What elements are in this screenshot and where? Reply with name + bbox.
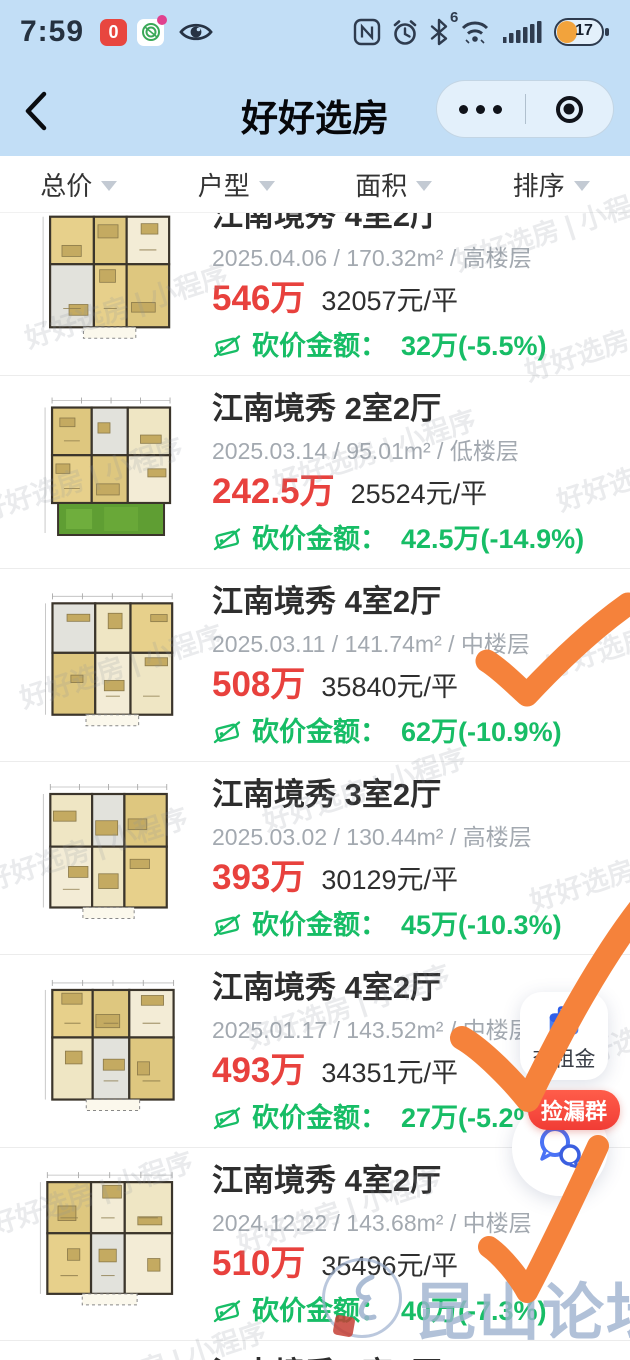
price-row: 510万35496元/平 bbox=[212, 1246, 606, 1284]
price-cut-tag-icon bbox=[212, 1296, 242, 1326]
price-row: 393万30129元/平 bbox=[212, 860, 606, 898]
eye-icon bbox=[178, 19, 214, 45]
nfc-icon bbox=[353, 18, 381, 46]
price-cut-tag-icon bbox=[212, 331, 242, 361]
target-circle-icon bbox=[556, 96, 583, 123]
listing-price: 546万 bbox=[212, 281, 305, 317]
bargain-group-badge[interactable]: 捡漏群 bbox=[528, 1090, 620, 1130]
price-cut-row: 砍价金额：40万(-7.3%) bbox=[212, 1296, 606, 1326]
listing-card[interactable]: 江南境秀 4室2厅2025.03.11 / 141.74m² / 中楼层508万… bbox=[0, 569, 630, 762]
battery-percent: 17 bbox=[568, 22, 600, 40]
price-cut-row: 砍价金额：45万(-10.3%) bbox=[212, 910, 606, 940]
price-cut-label: 砍价金额： bbox=[252, 331, 387, 361]
listing-unit-price: 35496元/平 bbox=[321, 1248, 458, 1284]
listing-meta: 2024.12.22 / 143.68m² / 中楼层 bbox=[212, 1210, 606, 1236]
price-cut-tag-icon bbox=[212, 910, 242, 940]
more-button[interactable] bbox=[437, 81, 525, 137]
nav-bar: 好好选房 bbox=[0, 64, 630, 156]
listing-unit-price: 35840元/平 bbox=[321, 669, 458, 705]
floorplan-image bbox=[34, 197, 184, 349]
floorplan-image bbox=[34, 969, 184, 1121]
network-generation-label: 6 bbox=[450, 9, 458, 26]
floorplan-image bbox=[34, 1162, 184, 1314]
filter-sort[interactable]: 排序 bbox=[473, 166, 630, 203]
listing-meta: 2025.03.02 / 130.44m² / 高楼层 bbox=[212, 824, 606, 850]
listing-info: 江南境秀 2室2厅2025.03.14 / 95.01m² / 低楼层242.5… bbox=[212, 390, 606, 554]
price-row: 508万35840元/平 bbox=[212, 667, 606, 705]
filter-layout[interactable]: 户型 bbox=[158, 166, 316, 203]
filter-bar: 总价 户型 面积 排序 bbox=[0, 156, 630, 213]
notification-badge-icon: 0 bbox=[100, 19, 127, 46]
floorplan-image bbox=[34, 776, 184, 928]
filter-total-price[interactable]: 总价 bbox=[0, 166, 158, 203]
notification-dot bbox=[157, 15, 167, 25]
listing-unit-price: 25524元/平 bbox=[351, 476, 488, 512]
notification-badge-count: 0 bbox=[109, 22, 119, 43]
green-swirl-icon bbox=[140, 21, 162, 43]
phone-screen: 7:59 0 bbox=[0, 0, 630, 1360]
price-row: 546万32057元/平 bbox=[212, 281, 606, 319]
listing-unit-price: 32057元/平 bbox=[321, 283, 458, 319]
floorplan-image bbox=[34, 1355, 184, 1360]
price-cut-label: 砍价金额： bbox=[252, 1296, 387, 1326]
floorplan-image bbox=[34, 390, 184, 542]
check-rent-button[interactable]: 查租金 bbox=[520, 992, 608, 1080]
listing-price: 508万 bbox=[212, 667, 305, 703]
price-cut-label: 砍价金额： bbox=[252, 1103, 387, 1133]
listing-price: 493万 bbox=[212, 1053, 305, 1089]
alarm-icon bbox=[390, 17, 420, 47]
listing-info: 江南境秀 3室2厅2025.03.02 / 130.44m² / 高楼层393万… bbox=[212, 776, 606, 940]
price-cut-label: 砍价金额： bbox=[252, 524, 387, 554]
listing-card[interactable]: 江南境秀 3室2厅 bbox=[0, 1341, 630, 1360]
listing-meta: 2025.03.11 / 141.74m² / 中楼层 bbox=[212, 631, 606, 657]
listing-card[interactable]: 江南境秀 3室2厅2025.03.02 / 130.44m² / 高楼层393万… bbox=[0, 762, 630, 955]
app-notification-icon bbox=[137, 19, 164, 46]
listing-unit-price: 30129元/平 bbox=[321, 862, 458, 898]
listing-unit-price: 34351元/平 bbox=[321, 1055, 458, 1091]
status-bar: 7:59 0 bbox=[0, 0, 630, 64]
price-cut-tag-icon bbox=[212, 1103, 242, 1133]
price-cut-value: 32万(-5.5%) bbox=[401, 331, 547, 361]
chevron-down-icon bbox=[416, 181, 432, 191]
price-cut-tag-icon bbox=[212, 524, 242, 554]
listing-card[interactable]: 江南境秀 2室2厅2025.03.14 / 95.01m² / 低楼层242.5… bbox=[0, 376, 630, 569]
listing-price: 242.5万 bbox=[212, 474, 335, 510]
price-cut-value: 62万(-10.9%) bbox=[401, 717, 562, 747]
listing-info: 江南境秀 3室2厅 bbox=[212, 1355, 606, 1360]
signal-icon bbox=[501, 17, 545, 47]
chevron-down-icon bbox=[101, 181, 117, 191]
more-icon bbox=[459, 105, 468, 114]
bluetooth-icon bbox=[429, 17, 449, 47]
price-cut-row: 砍价金额：32万(-5.5%) bbox=[212, 331, 606, 361]
listing-price: 393万 bbox=[212, 860, 305, 896]
chevron-down-icon bbox=[259, 181, 275, 191]
clock-time: 7:59 bbox=[20, 15, 84, 49]
price-cut-label: 砍价金额： bbox=[252, 717, 387, 747]
price-cut-row: 砍价金额：62万(-10.9%) bbox=[212, 717, 606, 747]
status-icons-group: 6 17 bbox=[353, 15, 610, 50]
price-cut-tag-icon bbox=[212, 717, 242, 747]
listing-info: 江南境秀 4室2厅2025.04.06 / 170.32m² / 高楼层546万… bbox=[212, 197, 606, 361]
price-cut-value: 40万(-7.3%) bbox=[401, 1296, 547, 1326]
listing-meta: 2025.03.14 / 95.01m² / 低楼层 bbox=[212, 438, 606, 464]
close-minimize-button[interactable] bbox=[526, 81, 614, 137]
filter-area[interactable]: 面积 bbox=[315, 166, 473, 203]
wifi-icon: 6 bbox=[458, 15, 492, 50]
miniprogram-capsule bbox=[436, 80, 614, 138]
listing-title: 江南境秀 3室2厅 bbox=[212, 778, 606, 812]
listing-meta: 2025.04.06 / 170.32m² / 高楼层 bbox=[212, 245, 606, 271]
price-cut-value: 45万(-10.3%) bbox=[401, 910, 562, 940]
listing-title: 江南境秀 4室2厅 bbox=[212, 585, 606, 619]
floorplan-image bbox=[34, 583, 184, 735]
rent-briefcase-icon bbox=[543, 1000, 585, 1042]
listing-title: 江南境秀 2室2厅 bbox=[212, 392, 606, 426]
chevron-down-icon bbox=[574, 181, 590, 191]
price-cut-label: 砍价金额： bbox=[252, 910, 387, 940]
price-row: 242.5万25524元/平 bbox=[212, 474, 606, 512]
price-cut-row: 砍价金额：42.5万(-14.9%) bbox=[212, 524, 606, 554]
listing-info: 江南境秀 4室2厅2025.03.11 / 141.74m² / 中楼层508万… bbox=[212, 583, 606, 747]
price-cut-value: 42.5万(-14.9%) bbox=[401, 524, 584, 554]
check-rent-label: 查租金 bbox=[533, 1043, 596, 1073]
listing-price: 510万 bbox=[212, 1246, 305, 1282]
battery-icon: 17 bbox=[554, 18, 610, 46]
